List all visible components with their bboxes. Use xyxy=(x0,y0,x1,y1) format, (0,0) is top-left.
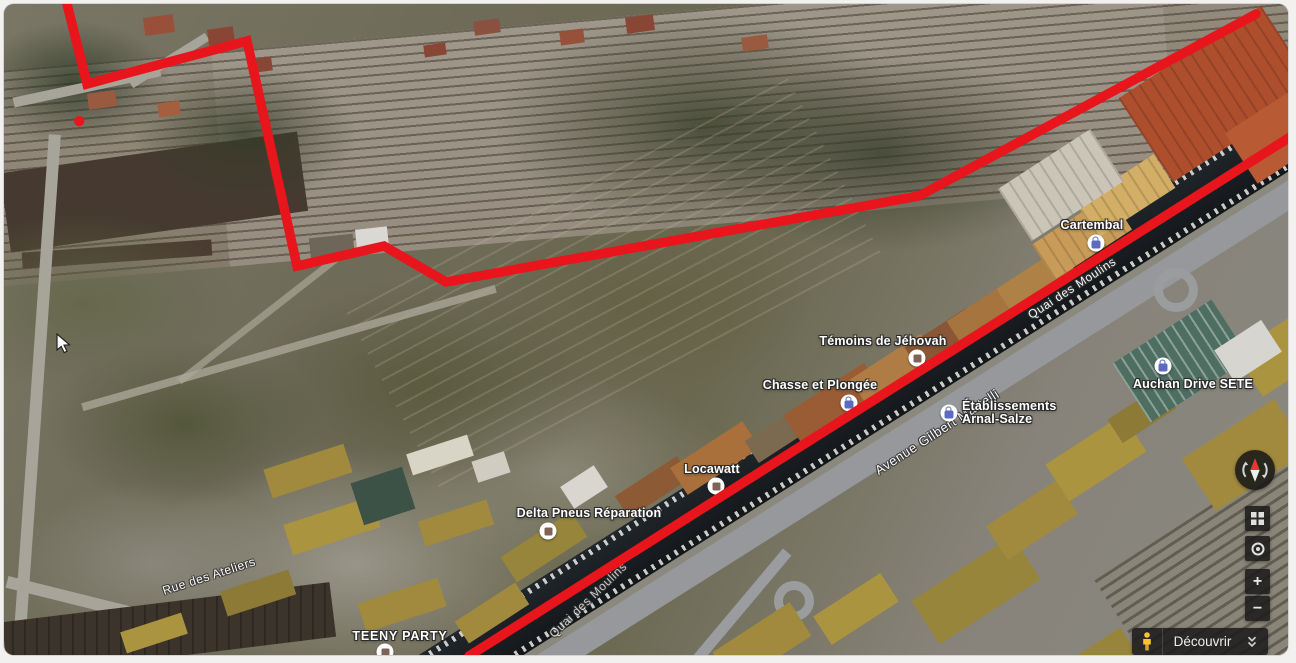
map-canvas[interactable]: Rue des Ateliers Avenue Gilbert Martelli… xyxy=(4,4,1288,655)
discover-bar[interactable]: Découvrir xyxy=(1132,628,1268,655)
place-icon[interactable] xyxy=(708,478,725,495)
my-location-icon xyxy=(1250,541,1266,557)
poi-label-delta-pneus-reparation[interactable]: Delta Pneus Réparation xyxy=(517,506,662,520)
compass-icon xyxy=(1238,453,1272,487)
shopping-bag-icon[interactable] xyxy=(941,405,958,422)
poi-label-cartembal[interactable]: Cartembal xyxy=(1061,218,1124,232)
google-maps-window: Rue des Ateliers Avenue Gilbert Martelli… xyxy=(0,0,1296,663)
shopping-bag-icon[interactable] xyxy=(1088,235,1105,252)
poi-label-temoins-de-jehovah[interactable]: Témoins de Jéhovah xyxy=(819,334,946,348)
compass-control[interactable] xyxy=(1235,450,1275,490)
place-icon[interactable] xyxy=(540,523,557,540)
map-tiles-button[interactable] xyxy=(1245,506,1270,531)
shopping-bag-icon[interactable] xyxy=(841,395,858,412)
poi-label-teeny-party[interactable]: TEENY PARTY xyxy=(352,629,447,643)
pegman-icon xyxy=(1141,632,1153,652)
poi-label-etablissements-arnal-salze[interactable]: Établissements Arnal-Salze xyxy=(962,400,1057,426)
poi-label-line2: Arnal-Salze xyxy=(962,413,1057,426)
mouse-cursor xyxy=(56,333,72,355)
chevron-double-down-icon[interactable] xyxy=(1242,635,1268,649)
poi-label-auchan-drive-sete[interactable]: Auchan Drive SETE xyxy=(1133,377,1253,391)
tiles-grid-icon xyxy=(1251,512,1264,525)
zoom-out-button[interactable]: − xyxy=(1245,596,1270,621)
poi-label-locawatt[interactable]: Locawatt xyxy=(684,462,740,476)
discover-label: Découvrir xyxy=(1163,634,1242,649)
pegman-button[interactable] xyxy=(1132,628,1163,655)
zoom-in-button[interactable]: + xyxy=(1245,569,1270,594)
my-location-button[interactable] xyxy=(1245,536,1270,561)
roundabout xyxy=(1154,268,1198,312)
place-icon[interactable] xyxy=(377,644,394,656)
poi-label-chasse-et-plongee[interactable]: Chasse et Plongée xyxy=(763,378,878,392)
place-icon[interactable] xyxy=(909,350,926,367)
shopping-bag-icon[interactable] xyxy=(1155,358,1172,375)
